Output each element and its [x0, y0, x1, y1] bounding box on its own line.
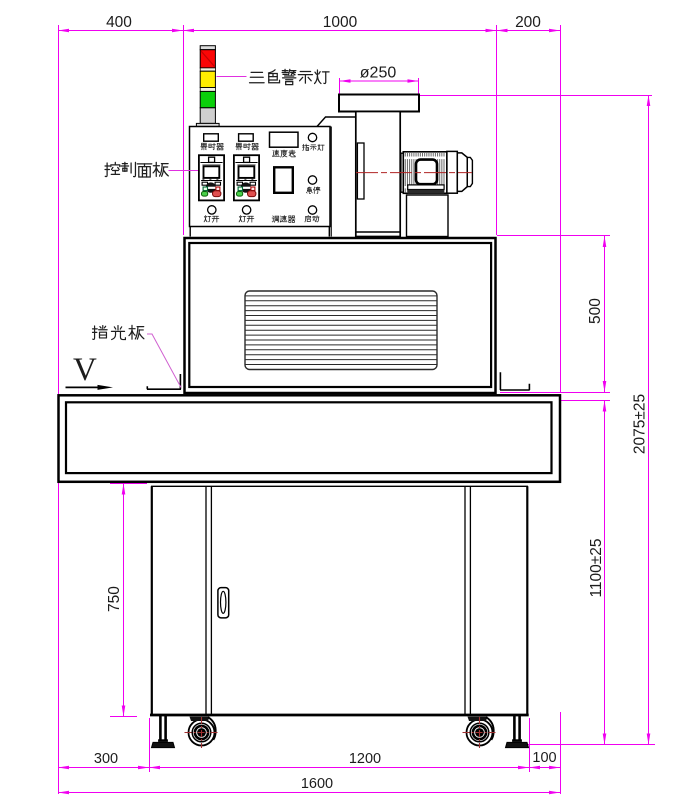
svg-text:1600: 1600: [301, 776, 333, 792]
svg-text:750: 750: [106, 586, 123, 612]
svg-text:1200: 1200: [349, 751, 381, 767]
svg-text:V: V: [73, 352, 97, 388]
svg-text:500: 500: [587, 298, 604, 324]
svg-text:100: 100: [532, 750, 556, 766]
svg-text:200: 200: [515, 14, 541, 31]
svg-text:1000: 1000: [323, 14, 358, 31]
svg-text:1100±25: 1100±25: [588, 538, 605, 597]
svg-text:ø250: ø250: [360, 65, 397, 82]
svg-text:2075±25: 2075±25: [632, 394, 649, 454]
svg-text:400: 400: [106, 14, 132, 31]
svg-text:300: 300: [94, 751, 118, 767]
